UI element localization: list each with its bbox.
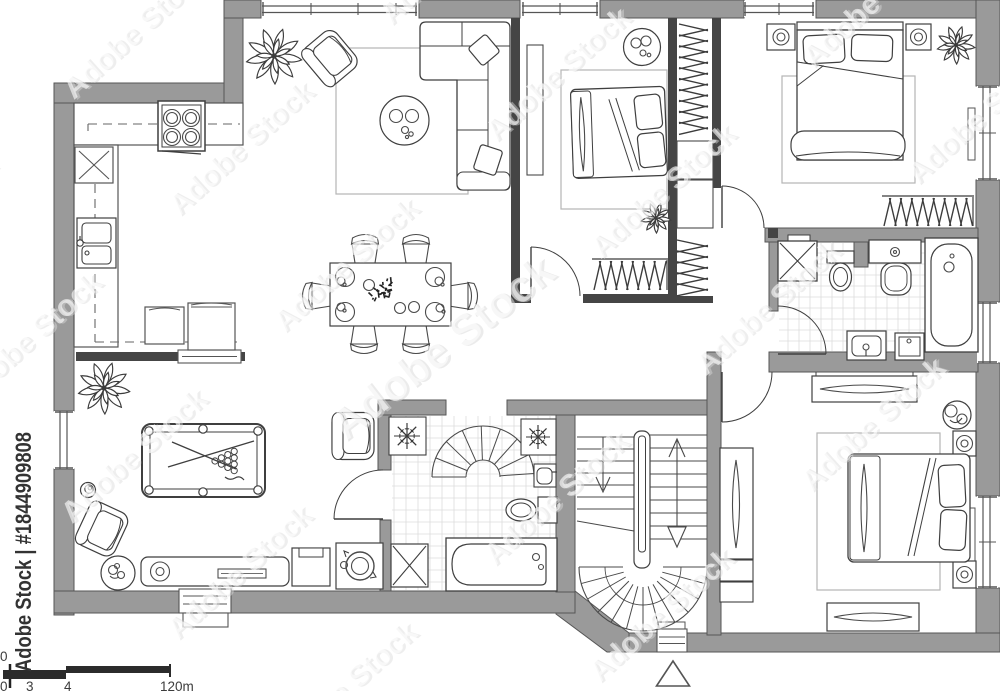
svg-text:0: 0 [0,679,8,691]
svg-text:Adobe Stock | #1844909808: Adobe Stock | #1844909808 [11,432,36,672]
svg-text:4: 4 [64,679,72,691]
svg-text:120m: 120m [160,679,194,691]
svg-text:0: 0 [0,649,8,664]
svg-text:3: 3 [26,679,34,691]
